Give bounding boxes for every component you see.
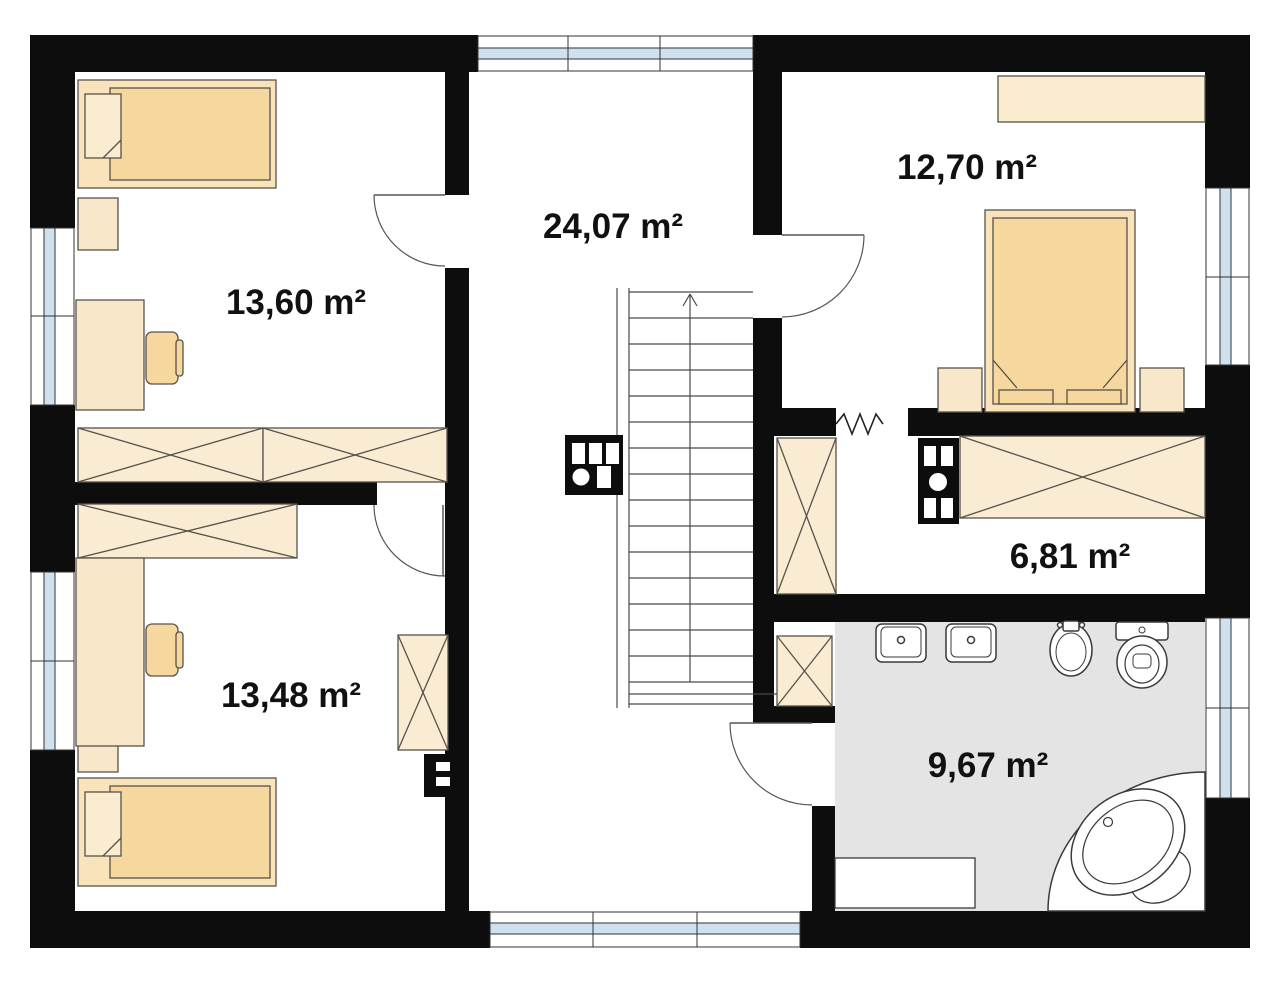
wall-bottom-right	[800, 911, 1250, 948]
door-bedroom-top-left	[374, 195, 445, 266]
desk-top-left	[76, 300, 144, 410]
bathroom-counter	[835, 858, 975, 908]
wardrobe-hall-upper	[777, 438, 836, 594]
toilet-icon	[1116, 622, 1168, 688]
wardrobe-closet-room	[960, 436, 1205, 518]
wall-top-left	[30, 35, 478, 72]
wall-hall-left-upper	[445, 72, 469, 195]
bed-double	[985, 210, 1135, 412]
sink-icon-2	[946, 624, 996, 662]
room-label-hall: 24,07 m²	[543, 207, 683, 247]
window-right-bedroom	[1206, 188, 1249, 365]
nightstand-right-left	[938, 368, 982, 412]
door-bedroom-bottom-left	[374, 505, 445, 576]
wall-cap-under-closet	[753, 706, 835, 723]
wall-bottom-left	[30, 911, 490, 948]
window-left-bedroom-bottom	[31, 572, 74, 750]
window-top-hall	[478, 36, 753, 71]
wall-bathroom-left	[812, 806, 835, 911]
shelf-top-right	[998, 76, 1205, 122]
room-label-wardrobe-room: 6,81 m²	[1010, 537, 1131, 577]
wall-stub-left	[753, 408, 836, 436]
wall-top-right	[753, 35, 1250, 72]
wall-left-2	[30, 405, 75, 572]
bedroom-top-left-furniture	[76, 80, 276, 410]
wall-right-3	[1205, 798, 1250, 948]
nightstand-top-left	[78, 198, 118, 250]
room-label-bedroom-top-right: 12,70 m²	[897, 148, 1037, 188]
room-label-bedroom-bottom-left: 13,48 m²	[221, 676, 361, 716]
door-bathroom	[730, 723, 812, 805]
stair-treads	[629, 292, 753, 682]
sink-icon-1	[876, 624, 926, 662]
window-right-bathroom	[1206, 618, 1249, 798]
chimney-symbol-closet	[918, 438, 959, 524]
wall-between-left-bedrooms	[75, 482, 377, 505]
wall-hall-right-upper	[753, 72, 782, 235]
chimney-symbol-hall	[565, 435, 623, 495]
bed-single-top-left	[78, 80, 276, 188]
wall-right-2	[1205, 365, 1250, 618]
window-left-bedroom-top	[31, 228, 74, 405]
room-label-bedroom-top-left: 13,60 m²	[226, 283, 366, 323]
wall-break-zigzag-icon	[836, 414, 883, 434]
room-label-bathroom: 9,67 m²	[928, 746, 1049, 786]
desk-bottom-left	[76, 558, 144, 746]
bedroom-bottom-left-furniture	[76, 558, 276, 886]
wall-hall-left-lower	[445, 268, 469, 911]
wardrobe-hall-lower	[777, 636, 832, 706]
chair-top-left	[146, 332, 183, 384]
wall-left-3	[30, 750, 75, 948]
wardrobe-small-bottom-left	[398, 635, 448, 750]
wardrobe-bedroom-bottom-left	[78, 504, 297, 558]
floor-plan: 13,60 m² 24,07 m² 12,70 m² 6,81 m² 13,48…	[0, 0, 1280, 983]
bed-single-bottom-left	[78, 778, 276, 886]
radiator-symbol	[424, 754, 450, 797]
wall-stairs-right	[753, 436, 774, 706]
floor-plan-drawing	[0, 0, 1280, 983]
door-bedroom-top-right	[782, 235, 864, 317]
wall-right-1	[1205, 35, 1250, 188]
window-bottom-hall	[490, 912, 800, 947]
wall-left-1	[30, 35, 75, 228]
chair-bottom-left	[146, 624, 183, 676]
nightstand-right-right	[1140, 368, 1184, 412]
bedroom-top-right-furniture	[938, 76, 1205, 412]
wardrobe-bedroom-top-left	[78, 428, 447, 482]
wall-closet-bathroom	[753, 594, 1205, 622]
